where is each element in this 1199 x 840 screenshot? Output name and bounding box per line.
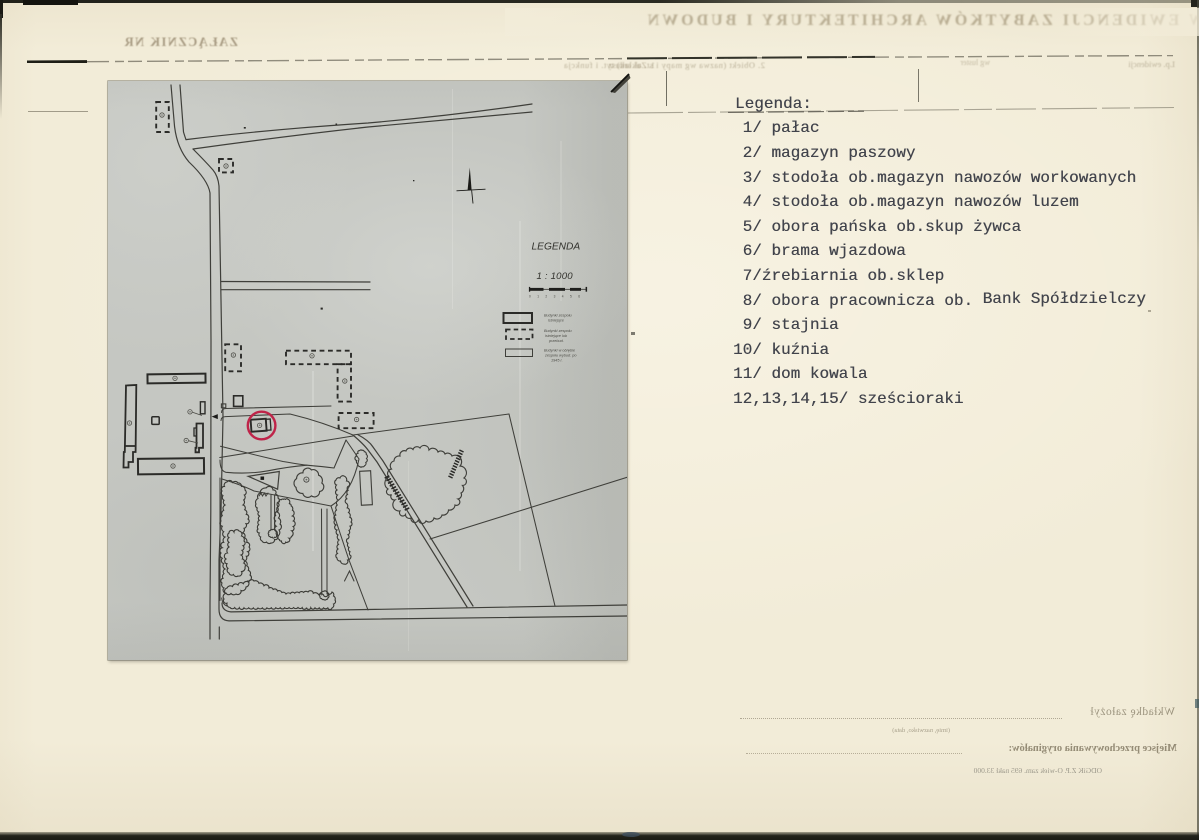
svg-text:2: 2 xyxy=(545,295,547,299)
svg-text:Budynki zespołu: Budynki zespołu xyxy=(544,329,573,333)
svg-text:zespołu wybud. po: zespołu wybud. po xyxy=(544,354,576,358)
svg-text:istniejące lub: istniejące lub xyxy=(545,334,567,338)
svg-text:1: 1 xyxy=(537,295,539,299)
svg-text:3: 3 xyxy=(554,295,556,299)
svg-text:5: 5 xyxy=(570,295,572,299)
svg-text:przebud.: przebud. xyxy=(548,339,564,343)
svg-text:4: 4 xyxy=(562,295,564,299)
svg-text:0: 0 xyxy=(529,295,531,299)
svg-text:Budynki w obrębie: Budynki w obrębie xyxy=(544,349,575,353)
svg-text:1 : 1000: 1 : 1000 xyxy=(537,271,574,282)
svg-text:6: 6 xyxy=(578,295,580,299)
svg-text:Budynki zespołu: Budynki zespołu xyxy=(544,314,573,318)
svg-text:LEGENDA: LEGENDA xyxy=(532,242,581,253)
svg-text:1945 r.: 1945 r. xyxy=(551,359,563,363)
svg-text:istniejące: istniejące xyxy=(548,319,564,323)
